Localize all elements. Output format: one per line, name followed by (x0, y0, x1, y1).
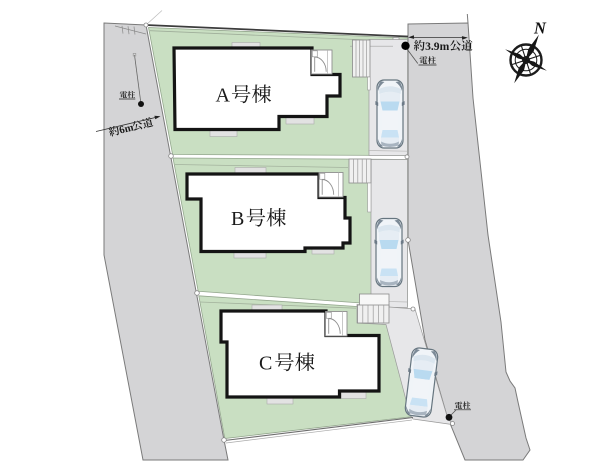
svg-text:N: N (533, 19, 547, 38)
svg-text:A: A (216, 85, 231, 107)
svg-text:B: B (231, 208, 244, 230)
svg-text:C: C (259, 353, 272, 375)
svg-text:3.9m: 3.9m (425, 40, 449, 53)
